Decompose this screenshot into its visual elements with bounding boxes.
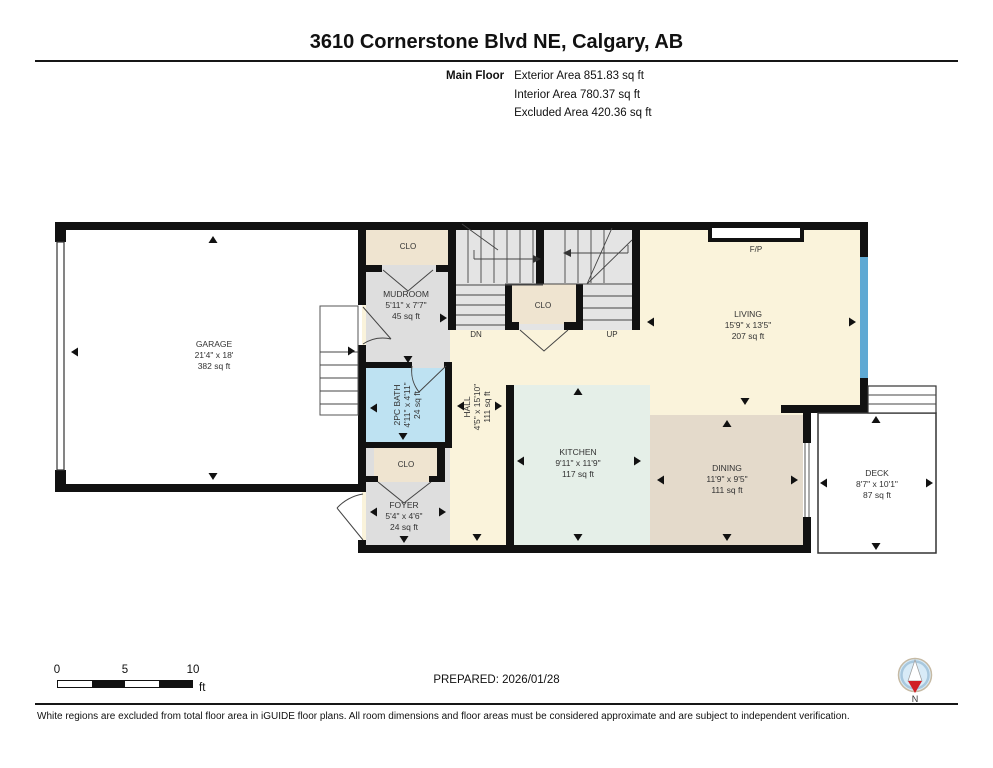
room-name: HALL [462,396,472,418]
room-area: 45 sq ft [392,311,421,321]
wall [358,345,366,490]
closet-label: CLO [400,242,416,251]
wall [781,405,868,413]
room-name: LIVING [734,309,762,319]
floorplan-page: 3610 Cornerstone Blvd NE, Calgary, AB Ma… [0,0,993,768]
wall [448,226,456,330]
room-name: 2PC BATH [392,385,402,426]
room-area: 24 sq ft [390,522,419,532]
wall [506,385,514,545]
sliding-door [803,443,811,517]
room-dims: 21'4" x 18' [195,350,234,360]
room-area: 117 sq ft [562,469,595,479]
garage-door [57,242,64,470]
prepared-date: PREPARED: 2026/01/28 [0,674,993,686]
wall [803,413,811,443]
wall [505,322,519,330]
disclaimer-text: White regions are excluded from total fl… [37,711,850,722]
measure-arrow [71,348,78,357]
room-name: GARAGE [196,339,233,349]
floor-fills [362,226,860,545]
footer-divider [35,703,958,705]
wall [436,265,452,272]
closet-label: CLO [398,460,414,469]
room-dims: 5'11" x 7'7" [385,300,426,310]
floorplan-drawing: GARAGE 21'4" x 18' 382 sq ft MUDROOM 5'1… [0,0,993,768]
room-area: 111 sq ft [482,391,492,423]
wall [564,322,583,330]
stairs-up-label: UP [606,330,617,339]
fireplace-box [710,226,802,240]
room-area: 87 sq ft [863,490,892,500]
room-dims: 9'11" x 11'9" [555,458,600,468]
garage-stairs [320,306,358,415]
wall [358,545,811,553]
window-strip [860,257,868,378]
fireplace-label: F/P [750,245,762,254]
room-name: FOYER [389,500,418,510]
wall [358,222,366,305]
room-area: 24 sq ft [412,390,422,419]
entry-door-swing [337,494,363,540]
room-area: 207 sq ft [732,331,765,341]
measure-arrow [209,236,218,243]
room-dims: 5'4" x 4'6" [385,511,422,521]
closet-label: CLO [535,301,551,310]
wall [429,476,445,482]
room-area: 111 sq ft [711,485,743,495]
wall [55,222,66,242]
room-name: KITCHEN [559,447,596,457]
room-dims: 11'9" x 9'5" [706,474,747,484]
room-name: MUDROOM [383,289,429,299]
stairs-down-label: DN [470,330,482,339]
room-dims: 4'5" x 15'10" [472,384,482,431]
wall [803,517,811,553]
room-name: DECK [865,468,889,478]
room-dims: 8'7" x 10'1" [856,479,898,489]
room-name: DINING [712,463,742,473]
wall [445,362,452,448]
room-area: 382 sq ft [198,361,231,371]
wall [366,476,378,482]
measure-arrow [209,473,218,480]
room-dims: 15'9" x 13'5" [725,320,772,330]
wall [57,484,366,492]
wall [536,226,544,284]
room-dims: 4'11" x 4'11" [402,382,412,427]
wall [632,226,640,330]
deck-steps [868,386,936,413]
wall [366,362,412,368]
wall [366,265,382,272]
wall [366,442,452,448]
wall [55,470,66,492]
